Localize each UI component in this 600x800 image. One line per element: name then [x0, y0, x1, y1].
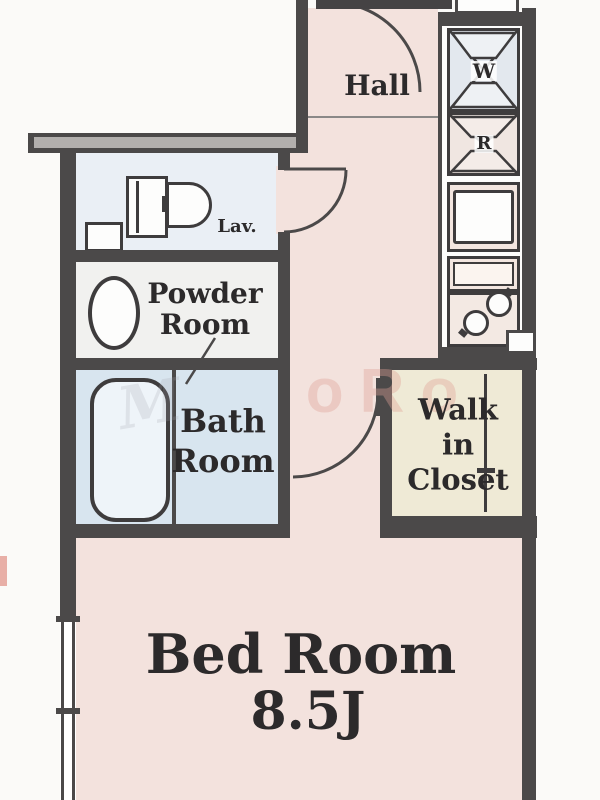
room-label-bath-room: Bath Room [171, 401, 274, 481]
bath-bedroom-wall [60, 524, 290, 538]
scan-artifact [0, 556, 7, 586]
corner-pillar [506, 330, 536, 354]
window-frame-tick [56, 616, 80, 622]
room-label-powder-room: Powder Room [147, 278, 262, 340]
lav-powder-wall [76, 250, 290, 262]
washbasin-oval [88, 276, 140, 350]
room-label-hall: Hall [344, 72, 410, 100]
cutoff-label-fragment [316, 0, 452, 9]
hall-partition-wall [278, 148, 290, 170]
kitchen-sink-basin [453, 190, 514, 244]
lavatory-door-opening [276, 166, 292, 234]
window-frame-tick [56, 708, 80, 714]
toilet-side-cabinet [85, 222, 123, 252]
right-outer-wall [522, 8, 536, 800]
exterior-wall-cap [28, 133, 34, 153]
refrigerator-symbol-label: R [475, 135, 494, 153]
hall-partition-wall [278, 232, 290, 530]
floor-plan: oRo M Hall Lav. Powder Room Bath Room Wa… [0, 0, 600, 800]
room-label-walk-in-closet: Walk in Closet [407, 393, 509, 498]
room-size-bedroom: 8.5J [250, 686, 365, 738]
left-outer-wall [60, 150, 76, 620]
toilet-bowl [166, 182, 212, 228]
toilet-hinge [162, 196, 168, 212]
kitchen-counter-inset [453, 262, 514, 286]
hall-left-wall [296, 0, 308, 150]
room-label-bedroom: Bed Room [146, 627, 457, 681]
washer-symbol-label: W [471, 61, 497, 81]
room-label-lavatory: Lav. [217, 218, 256, 236]
powder-bath-wall [76, 358, 290, 370]
closet-bottom-wall [380, 516, 537, 538]
cutoff-fixture-box [455, 0, 519, 14]
toilet-tank-line [136, 181, 139, 233]
hall-floor [290, 148, 438, 370]
